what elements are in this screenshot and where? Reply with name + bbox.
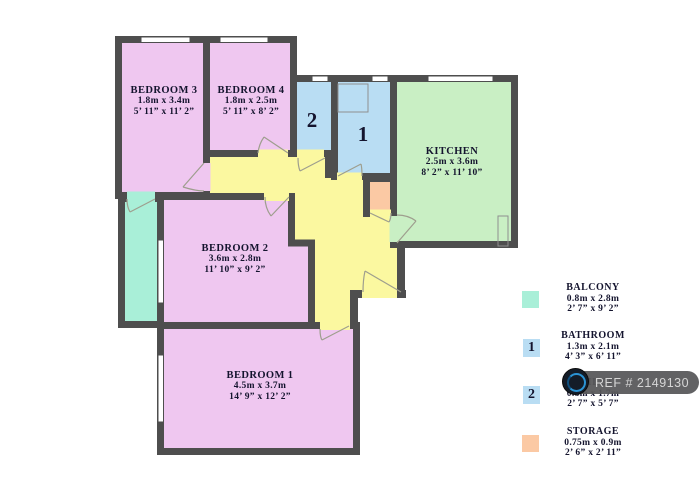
room-kitchen <box>394 79 515 245</box>
legend-imperial: 2’ 6” x 2’ 11” <box>537 448 649 459</box>
legend-imperial: 4’ 3” x 6’ 11” <box>537 352 649 363</box>
room-bedroom1 <box>161 326 357 452</box>
room-bedroom2 <box>161 197 312 327</box>
room-balcony <box>122 199 161 325</box>
legend-imperial: 2’ 7” x 5’ 7” <box>537 399 649 410</box>
legend-name: BALCONY <box>537 283 649 294</box>
legend-item-storage: STORAGE 0.75m x 0.9m 2’ 6” x 2’ 11” <box>537 427 649 459</box>
legend-metric: 0.8m x 2.8m <box>537 294 649 305</box>
legend-name: STORAGE <box>537 427 649 438</box>
legend-imperial: 2’ 7” x 9’ 2” <box>537 304 649 315</box>
legend-item-balcony: BALCONY 0.8m x 2.8m 2’ 7” x 9’ 2” <box>537 283 649 315</box>
floorplan-canvas: BEDROOM 3 1.8m x 3.4m 5’ 11” x 11’ 2” BE… <box>0 0 700 496</box>
room-storage <box>367 179 394 214</box>
room-bedroom3 <box>119 40 207 196</box>
watermark-logo-icon <box>562 368 589 395</box>
legend-metric: 0.75m x 0.9m <box>537 438 649 449</box>
room-bedroom4 <box>207 40 294 154</box>
legend-metric: 1.3m x 2.1m <box>537 342 649 353</box>
marker-bathroom: 1 <box>347 122 379 147</box>
watermark-pill: REF # 2149130 <box>565 371 699 394</box>
watermark-ref: REF # 2149130 <box>595 376 689 390</box>
legend-name: BATHROOM <box>537 331 649 342</box>
marker-toilet: 2 <box>296 108 328 133</box>
floorplan-drawing <box>0 0 700 496</box>
legend-item-bathroom: BATHROOM 1.3m x 2.1m 4’ 3” x 6’ 11” <box>537 331 649 363</box>
